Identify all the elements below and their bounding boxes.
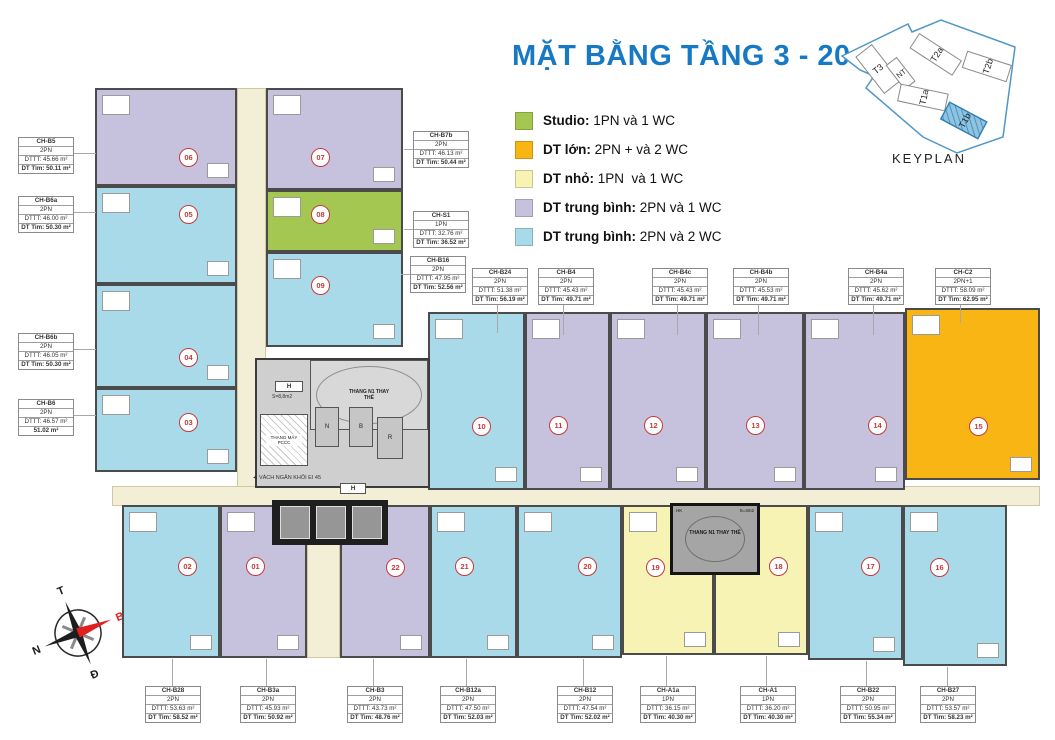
- leader-line: [866, 661, 867, 686]
- unit-label-CH-S1: CH-S11PNDTTT: 32.76 m²DT Tim: 36.52 m²: [413, 211, 469, 248]
- label-name-row: CH-B7b: [414, 132, 468, 140]
- unit-label-CH-B4b: CH-B4b2PNDTTT: 45.53 m²DT Tim: 49.71 m²: [733, 268, 789, 305]
- unit-label-CH-B27: CH-B272PNDTTT: 53.57 m²DT Tim: 58.23 m²: [920, 686, 976, 723]
- label-type-row: 2PN: [841, 695, 895, 704]
- unit-number-13: 13: [746, 416, 765, 435]
- label-name-row: CH-B24: [473, 269, 527, 277]
- label-area2-row: DT Tim: 40.30 m²: [641, 713, 695, 722]
- stair-core-bottom: HK S=3m2 THANG N1 THAY THẾ: [670, 503, 760, 575]
- leader-line: [758, 305, 759, 335]
- label-area2-row: DT Tim: 50.30 m²: [19, 223, 73, 232]
- label-type-row: 2PN: [19, 408, 73, 417]
- unit-label-CH-B12: CH-B122PNDTTT: 47.54 m²DT Tim: 52.02 m²: [557, 686, 613, 723]
- unit-08: 08: [266, 190, 403, 252]
- label-area2-row: DT Tim: 52.03 m²: [441, 713, 495, 722]
- stair-core-hk-label: HK: [676, 508, 682, 513]
- unit-label-CH-B22: CH-B222PNDTTT: 50.95 m²DT Tim: 55.34 m²: [840, 686, 896, 723]
- label-area1-row: DTTT: 46.05 m²: [19, 351, 73, 360]
- hose-box-2: H: [340, 483, 366, 494]
- unit-number-15: 15: [969, 417, 988, 436]
- leader-line: [401, 274, 410, 275]
- label-area2-row: DT Tim: 58.23 m²: [921, 713, 975, 722]
- leader-line: [583, 659, 584, 686]
- label-area1-row: DTTT: 32.76 m²: [414, 229, 468, 238]
- unit-number-09: 09: [311, 276, 330, 295]
- unit-label-CH-B6: CH-B62PNDTTT: 46.57 m²51.02 m²: [18, 399, 74, 436]
- label-name-row: CH-B4b: [734, 269, 788, 277]
- hose-box-1-label: H: [287, 384, 291, 390]
- label-name-row: CH-B6: [19, 400, 73, 408]
- label-type-row: 2PN: [734, 277, 788, 286]
- core-room-n-label: N: [325, 424, 329, 430]
- leader-line: [563, 305, 564, 335]
- label-area2-row: DT Tim: 49.71 m²: [539, 295, 593, 304]
- fire-lift-pccc-label: THANG MÁY PCCC: [266, 434, 302, 446]
- label-type-row: 2PN: [653, 277, 707, 286]
- label-type-row: 2PN: [849, 277, 903, 286]
- label-area1-row: DTTT: 58.09 m²: [936, 286, 990, 295]
- unit-label-CH-B6b: CH-B6b2PNDTTT: 46.05 m²DT Tim: 50.30 m²: [18, 333, 74, 370]
- elevator-bank: [272, 500, 388, 545]
- label-name-row: CH-A1a: [641, 687, 695, 695]
- compass-icon: T B Đ N: [22, 575, 134, 687]
- leader-line: [373, 659, 374, 686]
- label-area2-row: DT Tim: 56.19 m²: [473, 295, 527, 304]
- partition-note: ◄ VÁCH NGĂN KHỐI EI 45: [252, 475, 321, 481]
- elevator-car: [316, 506, 346, 539]
- unit-number-20: 20: [578, 557, 597, 576]
- label-type-row: 2PN: [473, 277, 527, 286]
- unit-14: 14: [804, 312, 905, 490]
- core-room-n: N: [315, 407, 339, 447]
- label-type-row: 2PN: [19, 146, 73, 155]
- leader-line: [266, 659, 267, 686]
- unit-number-16: 16: [930, 558, 949, 577]
- label-area1-row: DTTT: 45.53 m²: [734, 286, 788, 295]
- unit-label-CH-B4c: CH-B4c2PNDTTT: 45.43 m²DT Tim: 49.71 m²: [652, 268, 708, 305]
- unit-21: 21: [430, 505, 517, 658]
- leader-line: [172, 659, 173, 686]
- leader-line: [677, 305, 678, 335]
- label-type-row: 1PN: [641, 695, 695, 704]
- elevator-car: [352, 506, 382, 539]
- label-area2-row: DT Tim: 55.34 m²: [841, 713, 895, 722]
- label-type-row: 1PN: [741, 695, 795, 704]
- unit-number-10: 10: [472, 417, 491, 436]
- unit-13: 13: [706, 312, 804, 490]
- label-area2-row: DT Tim: 40.30 m²: [741, 713, 795, 722]
- unit-label-CH-B12a: CH-B12a2PNDTTT: 47.50 m²DT Tim: 52.03 m²: [440, 686, 496, 723]
- label-type-row: 2PN: [539, 277, 593, 286]
- label-area2-row: DT Tim: 62.95 m²: [936, 295, 990, 304]
- unit-label-CH-B5: CH-B52PNDTTT: 45.66 m²DT Tim: 50.11 m²: [18, 137, 74, 174]
- label-type-row: 2PN: [19, 342, 73, 351]
- hose-box-2-label: H: [351, 486, 355, 492]
- label-area1-row: DTTT: 47.50 m²: [441, 704, 495, 713]
- leader-line: [72, 212, 96, 213]
- label-area1-row: DTTT: 43.73 m²: [348, 704, 402, 713]
- label-name-row: CH-B6a: [19, 197, 73, 205]
- label-area2-row: DT Tim: 49.71 m²: [653, 295, 707, 304]
- unit-label-CH-B3: CH-B32PNDTTT: 43.73 m²DT Tim: 48.76 m²: [347, 686, 403, 723]
- stair-core-bottom-label: THANG N1 THAY THẾ: [673, 530, 757, 536]
- label-area2-row: DT Tim: 58.52 m²: [146, 713, 200, 722]
- core-room-b: B: [349, 407, 373, 447]
- unit-number-21: 21: [455, 557, 474, 576]
- label-area1-row: DTTT: 45.43 m²: [653, 286, 707, 295]
- leader-line: [72, 349, 96, 350]
- unit-label-CH-B3a: CH-B3a2PNDTTT: 45.93 m²DT Tim: 50.92 m²: [240, 686, 296, 723]
- unit-number-08: 08: [311, 205, 330, 224]
- label-type-row: 2PN: [19, 205, 73, 214]
- label-area2-row: DT Tim: 48.76 m²: [348, 713, 402, 722]
- compass-letter-south: N: [31, 644, 43, 658]
- leader-line: [404, 149, 413, 150]
- label-area1-row: DTTT: 53.57 m²: [921, 704, 975, 713]
- floorplan-page: MẶT BẰNG TẦNG 3 - 20 Studio: 1PN và 1 WC…: [0, 0, 1055, 740]
- unit-number-04: 04: [179, 348, 198, 367]
- label-name-row: CH-C2: [936, 269, 990, 277]
- unit-number-01: 01: [246, 557, 265, 576]
- label-name-row: CH-B3a: [241, 687, 295, 695]
- label-area1-row: DTTT: 53.63 m²: [146, 704, 200, 713]
- unit-06: 06: [95, 88, 237, 186]
- label-type-row: 2PN: [411, 265, 465, 274]
- unit-number-06: 06: [179, 148, 198, 167]
- unit-number-14: 14: [868, 416, 887, 435]
- label-name-row: CH-B4: [539, 269, 593, 277]
- label-area2-row: DT Tim: 50.44 m²: [414, 158, 468, 167]
- leader-line: [873, 305, 874, 335]
- label-area2-row: DT Tim: 50.11 m²: [19, 164, 73, 173]
- label-area1-row: DTTT: 47.95 m²: [411, 274, 465, 283]
- label-name-row: CH-B22: [841, 687, 895, 695]
- label-area2-row: DT Tim: 50.92 m²: [241, 713, 295, 722]
- label-name-row: CH-B27: [921, 687, 975, 695]
- unit-17: 17: [808, 505, 903, 660]
- leader-line: [497, 305, 498, 333]
- fire-lift-pccc: THANG MÁY PCCC: [260, 414, 308, 466]
- label-area2-row: DT Tim: 50.30 m²: [19, 360, 73, 369]
- unit-number-11: 11: [549, 416, 568, 435]
- label-name-row: CH-B12: [558, 687, 612, 695]
- unit-10: 10: [428, 312, 525, 490]
- leader-line: [766, 656, 767, 686]
- label-name-row: CH-B28: [146, 687, 200, 695]
- unit-number-12: 12: [644, 416, 663, 435]
- unit-number-03: 03: [179, 413, 198, 432]
- unit-number-18: 18: [769, 557, 788, 576]
- unit-label-CH-B4a: CH-B4a2PNDTTT: 45.62 m²DT Tim: 49.71 m²: [848, 268, 904, 305]
- compass-letter-west: T: [56, 584, 67, 598]
- unit-label-CH-C2: CH-C22PN+1DTTT: 58.09 m²DT Tim: 62.95 m²: [935, 268, 991, 305]
- label-name-row: CH-B4a: [849, 269, 903, 277]
- unit-number-19: 19: [646, 558, 665, 577]
- hose-box-1: H: [275, 381, 303, 392]
- label-type-row: 2PN: [348, 695, 402, 704]
- leader-line: [960, 305, 961, 323]
- area-note-s88: S=8,8m2: [272, 394, 292, 400]
- label-area1-row: DTTT: 45.93 m²: [241, 704, 295, 713]
- unit-number-17: 17: [861, 557, 880, 576]
- label-area2-row: DT Tim: 49.71 m²: [849, 295, 903, 304]
- label-area1-row: DTTT: 36.15 m²: [641, 704, 695, 713]
- compass-letter-east: Đ: [89, 668, 101, 682]
- label-area1-row: DTTT: 51.38 m²: [473, 286, 527, 295]
- label-type-row: 2PN+1: [936, 277, 990, 286]
- unit-number-07: 07: [311, 148, 330, 167]
- label-area2-row: 51.02 m²: [19, 426, 73, 435]
- label-name-row: CH-B5: [19, 138, 73, 146]
- label-type-row: 2PN: [921, 695, 975, 704]
- unit-number-22: 22: [386, 558, 405, 577]
- label-name-row: CH-S1: [414, 212, 468, 220]
- leader-line: [466, 659, 467, 686]
- label-area1-row: DTTT: 46.13 m²: [414, 149, 468, 158]
- label-area1-row: DTTT: 46.00 m²: [19, 214, 73, 223]
- unit-11: 11: [525, 312, 610, 490]
- unit-04: 04: [95, 284, 237, 388]
- core-room-r-label: R: [388, 435, 392, 441]
- leader-line: [72, 415, 96, 416]
- unit-09: 09: [266, 252, 403, 347]
- label-name-row: CH-B4c: [653, 269, 707, 277]
- unit-16: 16: [903, 505, 1007, 666]
- stair-core-top-label: THANG N1 THAY THẾ: [347, 389, 391, 401]
- unit-number-05: 05: [179, 205, 198, 224]
- unit-15: 15: [905, 308, 1040, 480]
- label-name-row: CH-B12a: [441, 687, 495, 695]
- label-area2-row: DT Tim: 49.71 m²: [734, 295, 788, 304]
- label-type-row: 2PN: [558, 695, 612, 704]
- unit-number-02: 02: [178, 557, 197, 576]
- label-type-row: 2PN: [146, 695, 200, 704]
- label-area1-row: DTTT: 46.57 m²: [19, 417, 73, 426]
- core-room-r: R: [377, 417, 403, 459]
- label-type-row: 2PN: [414, 140, 468, 149]
- label-name-row: CH-B6b: [19, 334, 73, 342]
- unit-label-CH-A1: CH-A11PNDTTT: 36.20 m²DT Tim: 40.30 m²: [740, 686, 796, 723]
- label-area1-row: DTTT: 47.54 m²: [558, 704, 612, 713]
- leader-line: [404, 229, 413, 230]
- label-area2-row: DT Tim: 36.52 m²: [414, 238, 468, 247]
- stair-core-s3-label: S=3m2: [740, 508, 754, 513]
- unit-05: 05: [95, 186, 237, 284]
- unit-12: 12: [610, 312, 706, 490]
- unit-20: 20: [517, 505, 622, 658]
- keyplan: T3 NT T2a T2b T1a T1b KEYPLAN: [828, 16, 1040, 168]
- label-area1-row: DTTT: 45.43 m²: [539, 286, 593, 295]
- unit-03: 03: [95, 388, 237, 472]
- label-type-row: 1PN: [414, 220, 468, 229]
- label-name-row: CH-B16: [411, 257, 465, 265]
- label-area1-row: DTTT: 45.62 m²: [849, 286, 903, 295]
- core-room-b-label: B: [359, 424, 363, 430]
- unit-label-CH-B16: CH-B162PNDTTT: 47.95 m²DT Tim: 52.56 m²: [410, 256, 466, 293]
- unit-07: 07: [266, 88, 403, 190]
- label-type-row: 2PN: [441, 695, 495, 704]
- unit-label-CH-B28: CH-B282PNDTTT: 53.63 m²DT Tim: 58.52 m²: [145, 686, 201, 723]
- label-type-row: 2PN: [241, 695, 295, 704]
- leader-line: [666, 656, 667, 686]
- label-area1-row: DTTT: 36.20 m²: [741, 704, 795, 713]
- elevator-car: [280, 506, 310, 539]
- unit-label-CH-B7b: CH-B7b2PNDTTT: 46.13 m²DT Tim: 50.44 m²: [413, 131, 469, 168]
- keyplan-caption: KEYPLAN: [892, 151, 966, 166]
- label-area2-row: DT Tim: 52.56 m²: [411, 283, 465, 292]
- unit-label-CH-B4: CH-B42PNDTTT: 45.43 m²DT Tim: 49.71 m²: [538, 268, 594, 305]
- unit-label-CH-B24: CH-B242PNDTTT: 51.38 m²DT Tim: 56.19 m²: [472, 268, 528, 305]
- unit-02: 02: [122, 505, 220, 658]
- leader-line: [947, 667, 948, 686]
- label-name-row: CH-B3: [348, 687, 402, 695]
- label-area2-row: DT Tim: 52.02 m²: [558, 713, 612, 722]
- label-name-row: CH-A1: [741, 687, 795, 695]
- leader-line: [72, 153, 96, 154]
- label-area1-row: DTTT: 50.95 m²: [841, 704, 895, 713]
- label-area1-row: DTTT: 45.66 m²: [19, 155, 73, 164]
- unit-label-CH-B6a: CH-B6a2PNDTTT: 46.00 m²DT Tim: 50.30 m²: [18, 196, 74, 233]
- unit-label-CH-A1a: CH-A1a1PNDTTT: 36.15 m²DT Tim: 40.30 m²: [640, 686, 696, 723]
